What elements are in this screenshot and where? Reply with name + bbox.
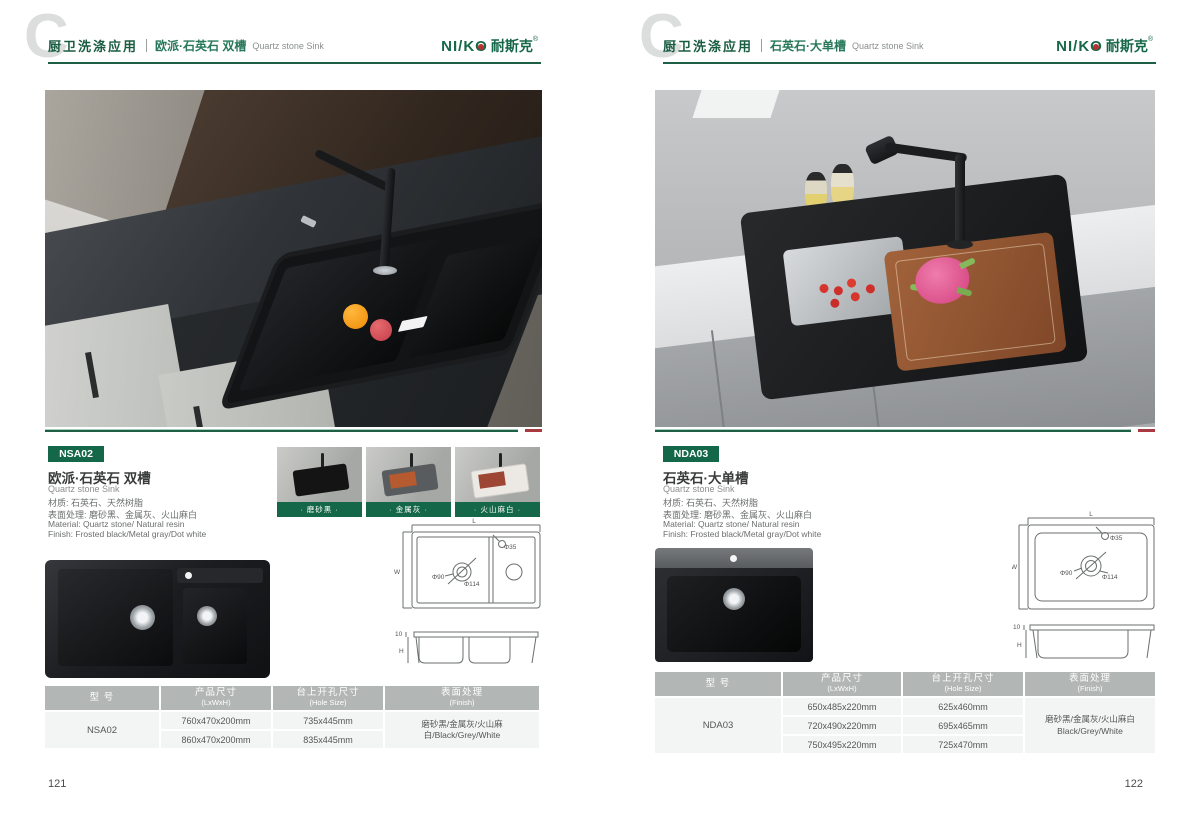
table-cell-model: NSA02 [45, 712, 159, 748]
table-header-hole: 台上开孔尺寸(Hole Size) [903, 672, 1023, 696]
swatch-label: · 磨砂黑 · [277, 502, 362, 517]
swatch-photo [366, 447, 451, 502]
table-header-size: 产品尺寸(LxWxH) [783, 672, 901, 696]
table-cell-size: 750x495x220mm [783, 736, 901, 753]
table-cell-hole: 695x465mm [903, 717, 1023, 734]
table-cell-size: 650x485x220mm [783, 698, 901, 715]
dim-label-d114: Φ114 [464, 581, 480, 588]
table-header-finish: 表面处理(Finish) [1025, 672, 1155, 696]
sink-bowl-large [58, 569, 173, 666]
dim-label-rim: 10 [395, 631, 403, 638]
model-badge: NSA02 [48, 446, 104, 462]
hero-photo-dark-kitchen [45, 90, 542, 427]
divider-line [655, 429, 1155, 432]
header-title-en: Quartz stone Sink [852, 41, 924, 51]
catalog-page-right: C 厨卫洗涤应用 石英石·大单槽 Quartz stone Sink NI/K … [645, 0, 1157, 820]
logo-red-dot-icon [1093, 44, 1099, 50]
logo-latin-text: NI/K [441, 38, 475, 55]
table-cell-size: 760x470x200mm [161, 712, 271, 729]
table-cell-model: NDA03 [655, 698, 781, 753]
divider-red-segment [1138, 429, 1155, 432]
table-cell-hole: 835x445mm [273, 731, 383, 748]
page-number: 121 [48, 778, 66, 790]
dim-label-d90: Φ90 [432, 574, 445, 581]
page-number: 122 [1125, 778, 1143, 790]
table-cell-finish: 磨砂黑/金属灰/火山麻白Black/Grey/White [1025, 698, 1155, 753]
table-cell-hole: 625x460mm [903, 698, 1023, 715]
logo-red-dot-icon [478, 44, 484, 50]
logo-cn-text: 耐斯克 [491, 36, 533, 56]
mini-sink-black [292, 463, 349, 496]
dim-label-d35: Φ35 [1110, 535, 1123, 542]
faucet-base [947, 240, 973, 249]
hero-photo-light-kitchen [655, 90, 1155, 427]
header-title-cn: 欧派·石英石 双槽 [155, 37, 246, 54]
dim-label-l: L [1089, 511, 1093, 518]
faucet-base [373, 266, 397, 275]
apple-fruit [370, 319, 392, 341]
product-finish-en: Finish: Frosted black/Metal gray/Dot whi… [48, 529, 206, 539]
orange-fruit [343, 304, 368, 329]
drain-icon [130, 605, 155, 630]
spec-table: 型 号 产品尺寸(LxWxH) 台上开孔尺寸(Hole Size) 表面处理(F… [655, 672, 1155, 753]
product-title-en: Quartz stone Sink [663, 484, 735, 494]
drain-icon [723, 588, 745, 610]
logo-o-letter: O [1090, 38, 1102, 55]
divider-green-segment [655, 429, 1131, 432]
dim-label-d90: Φ90 [1060, 570, 1073, 577]
table-header-hole: 台上开孔尺寸(Hole Size) [273, 686, 383, 710]
dim-label-l: L [472, 518, 476, 525]
header-category: 厨卫洗涤应用 [663, 36, 753, 55]
dim-label-w: W [1012, 564, 1018, 571]
header-title-en: Quartz stone Sink [252, 41, 324, 51]
header-title-cn: 石英石·大单槽 [770, 37, 846, 54]
table-cell-finish: 磨砂黑/金属灰/火山麻白/Black/Grey/White [385, 712, 539, 748]
window-shape [692, 90, 779, 118]
technical-drawing-double-sink: L W Φ35 Φ90 Φ114 10 H [392, 516, 550, 674]
logo-o-letter: O [475, 38, 487, 55]
spec-table: 型 号 产品尺寸(LxWxH) 台上开孔尺寸(Hole Size) 表面处理(F… [45, 686, 539, 748]
sink-bowl-small [183, 588, 247, 664]
swatch-photo [277, 447, 362, 502]
table-header-model: 型 号 [655, 672, 781, 696]
table-header-finish: 表面处理(Finish) [385, 686, 539, 710]
swatch-photo [455, 447, 540, 502]
swatch-label: · 金属灰 · [366, 502, 451, 517]
model-badge: NDA03 [663, 446, 719, 462]
product-photo-top-view [45, 558, 270, 680]
table-cell-hole: 725x470mm [903, 736, 1023, 753]
header-rule [663, 62, 1156, 64]
nisko-logo: NI/K O 耐斯克 ® [1056, 36, 1153, 56]
sink-body-shape [655, 568, 813, 662]
product-material-en: Material: Quartz stone/ Natural resin [663, 519, 800, 529]
table-cell-hole: 735x445mm [273, 712, 383, 729]
swatch-frosted-black: · 磨砂黑 · [277, 447, 362, 517]
faucet-column [955, 154, 965, 244]
color-swatch-row: · 磨砂黑 · · 金属灰 · · 火山麻白 · [277, 447, 540, 517]
table-cell-size: 860x470x200mm [161, 731, 271, 748]
logo-latin-text: NI/K [1056, 38, 1090, 55]
logo-registered-mark: ® [1148, 36, 1153, 43]
header-divider [146, 39, 147, 52]
single-sink-shape [740, 174, 1088, 401]
page-header: 厨卫洗涤应用 欧派·石英石 双槽 Quartz stone Sink [48, 36, 324, 55]
swatch-label: · 火山麻白 · [455, 502, 540, 517]
dim-label-w: W [394, 569, 401, 576]
swatch-dot-white: · 火山麻白 · [455, 447, 540, 517]
product-finish-en: Finish: Frosted black/Metal gray/Dot whi… [663, 529, 821, 539]
header-category: 厨卫洗涤应用 [48, 36, 138, 55]
header-divider [761, 39, 762, 52]
dim-label-h: H [1017, 642, 1022, 649]
product-title-en: Quartz stone Sink [48, 484, 120, 494]
divider-green-segment [45, 429, 518, 432]
logo-cn-text: 耐斯克 [1106, 36, 1148, 56]
faucet-hole-dot [730, 555, 737, 562]
product-photo-top-view [655, 548, 813, 662]
table-header-model: 型 号 [45, 686, 159, 710]
swatch-metal-gray: · 金属灰 · [366, 447, 451, 517]
catalog-page-left: C 厨卫洗涤应用 欧派·石英石 双槽 Quartz stone Sink NI/… [30, 0, 542, 820]
technical-drawing-single-sink: L W Φ35 Φ90 Φ114 10 H [1012, 511, 1162, 669]
drain-icon [197, 606, 217, 626]
table-header-size: 产品尺寸(LxWxH) [161, 686, 271, 710]
logo-registered-mark: ® [533, 36, 538, 43]
dim-label-rim: 10 [1013, 624, 1021, 631]
nisko-logo: NI/K O 耐斯克 ® [441, 36, 538, 56]
dim-label-d35: Φ35 [504, 544, 517, 551]
faucet-hole-dot [185, 572, 192, 579]
table-cell-size: 720x490x220mm [783, 717, 901, 734]
product-material-en: Material: Quartz stone/ Natural resin [48, 519, 185, 529]
dim-label-d114: Φ114 [1102, 574, 1118, 581]
dim-label-h: H [399, 648, 404, 655]
divider-line [45, 429, 542, 432]
divider-red-segment [525, 429, 542, 432]
page-header: 厨卫洗涤应用 石英石·大单槽 Quartz stone Sink [663, 36, 924, 55]
header-rule [48, 62, 541, 64]
